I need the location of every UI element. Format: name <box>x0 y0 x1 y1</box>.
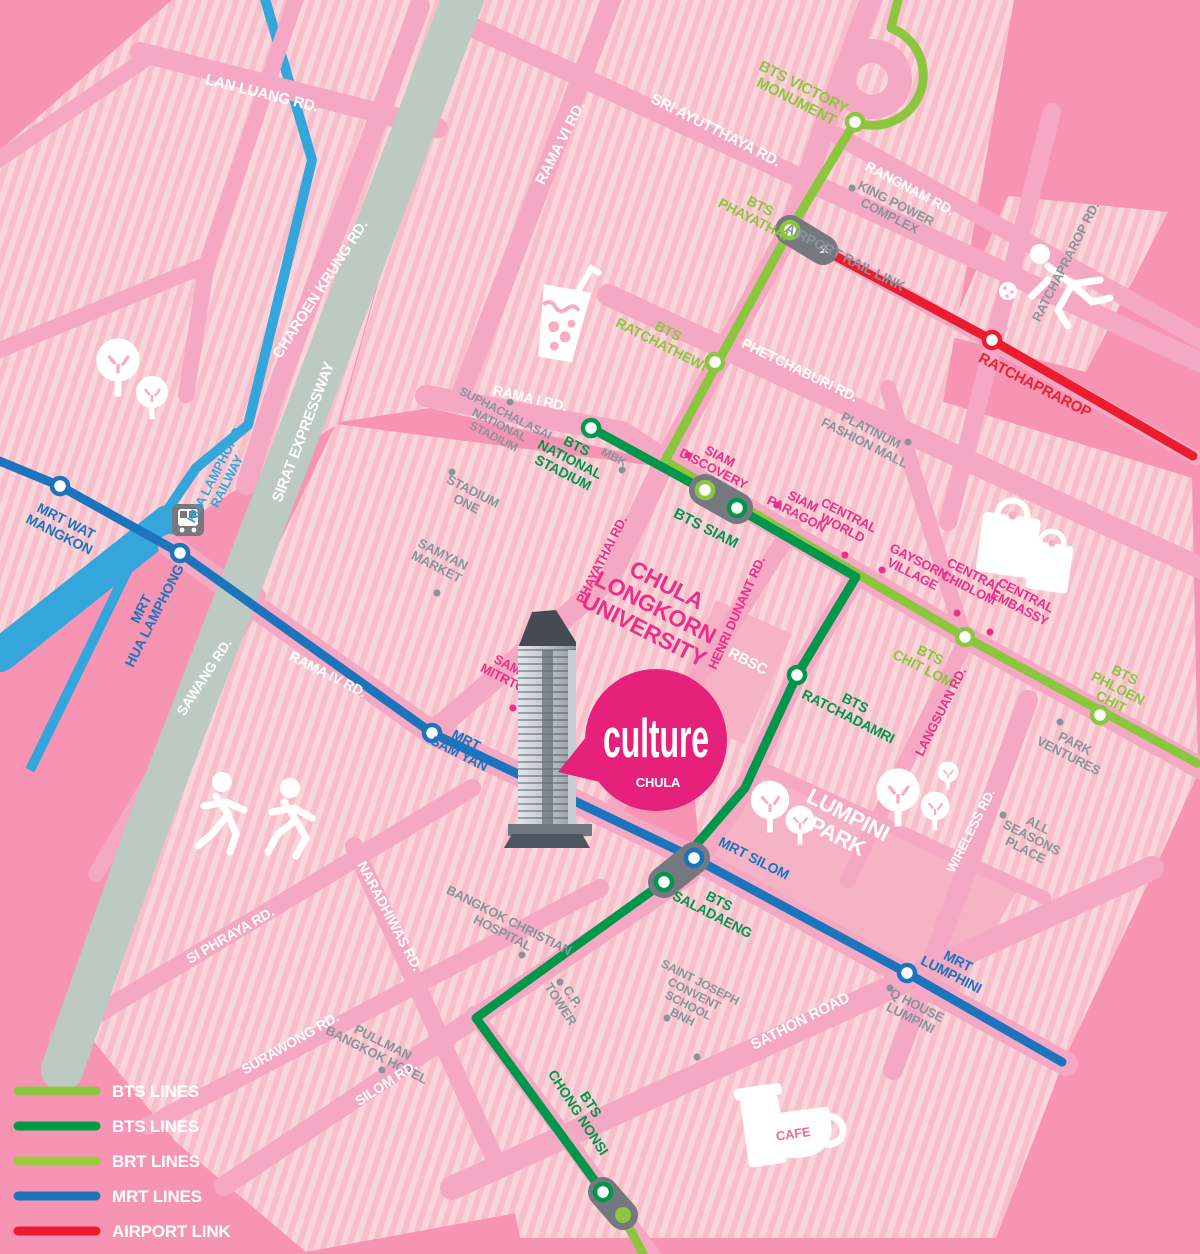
legend-label: AIRPORT LINK <box>112 1222 231 1241</box>
station-bts-chong-nonsi <box>595 1184 611 1200</box>
station-airport-link-ratchaprarop <box>984 332 1000 348</box>
station-mrt-hua-lamphong <box>172 545 188 561</box>
station-bts-chit-lom <box>957 629 973 645</box>
station-bts-siam-sukhumvit <box>697 482 713 498</box>
station-bts-national-stadium <box>583 420 599 436</box>
legend-label: BTS LINES <box>112 1082 199 1101</box>
legend-label: BTS LINES <box>112 1117 199 1136</box>
station-mrt-silom <box>686 850 702 866</box>
station-bts-saladaeng <box>656 874 672 890</box>
station-mrt-wat-mangkon <box>52 478 68 494</box>
station-bts-victory-monument <box>847 114 863 130</box>
station-bts-ratchadamri <box>789 667 805 683</box>
map-stage: ✈ <box>0 0 1200 1254</box>
station-brt <box>615 1207 631 1223</box>
legend-label: MRT LINES <box>112 1187 202 1206</box>
logo-title: culture <box>603 707 709 769</box>
logo-subtitle: CHULA <box>636 775 681 790</box>
station-mrt-lumphini <box>899 965 915 981</box>
map-canvas: ✈ <box>0 0 1200 1254</box>
station-bts-ratchathewi <box>707 354 723 370</box>
legend-label: BRT LINES <box>112 1152 200 1171</box>
station-bts-siam-silom <box>729 500 745 516</box>
station-bts-phloen-chit <box>1092 707 1108 723</box>
